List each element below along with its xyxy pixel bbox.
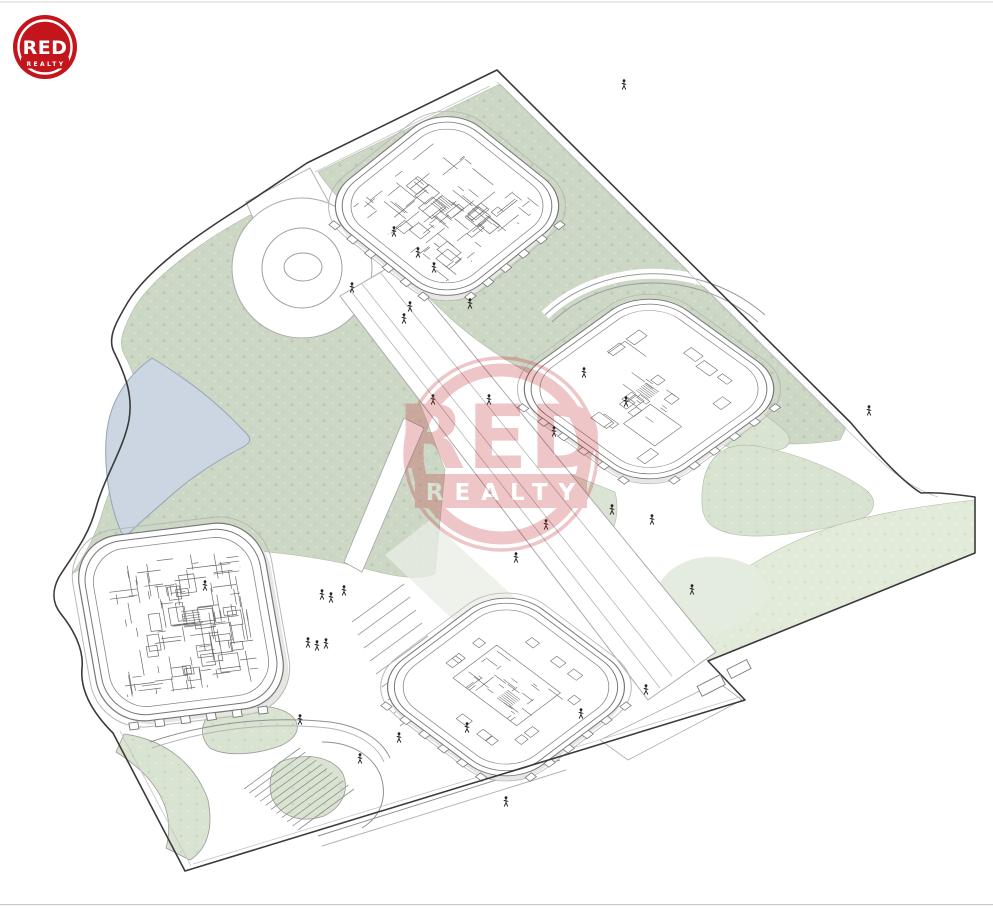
site-plan-illustration: RED REALTY RED REALTY	[0, 0, 993, 909]
logo-brand-text: RED	[23, 37, 68, 59]
roundabout-island	[284, 253, 322, 281]
terrace-lawn-b	[116, 734, 210, 860]
watermark-sub-text: REALTY	[426, 480, 586, 506]
frame-top-hairline	[0, 2, 993, 3]
watermark-brand-text: RED	[398, 386, 605, 489]
red-realty-logo: RED REALTY	[13, 15, 77, 79]
logo-sub-text: REALTY	[26, 61, 65, 68]
frame-bottom-hairline	[0, 904, 993, 905]
